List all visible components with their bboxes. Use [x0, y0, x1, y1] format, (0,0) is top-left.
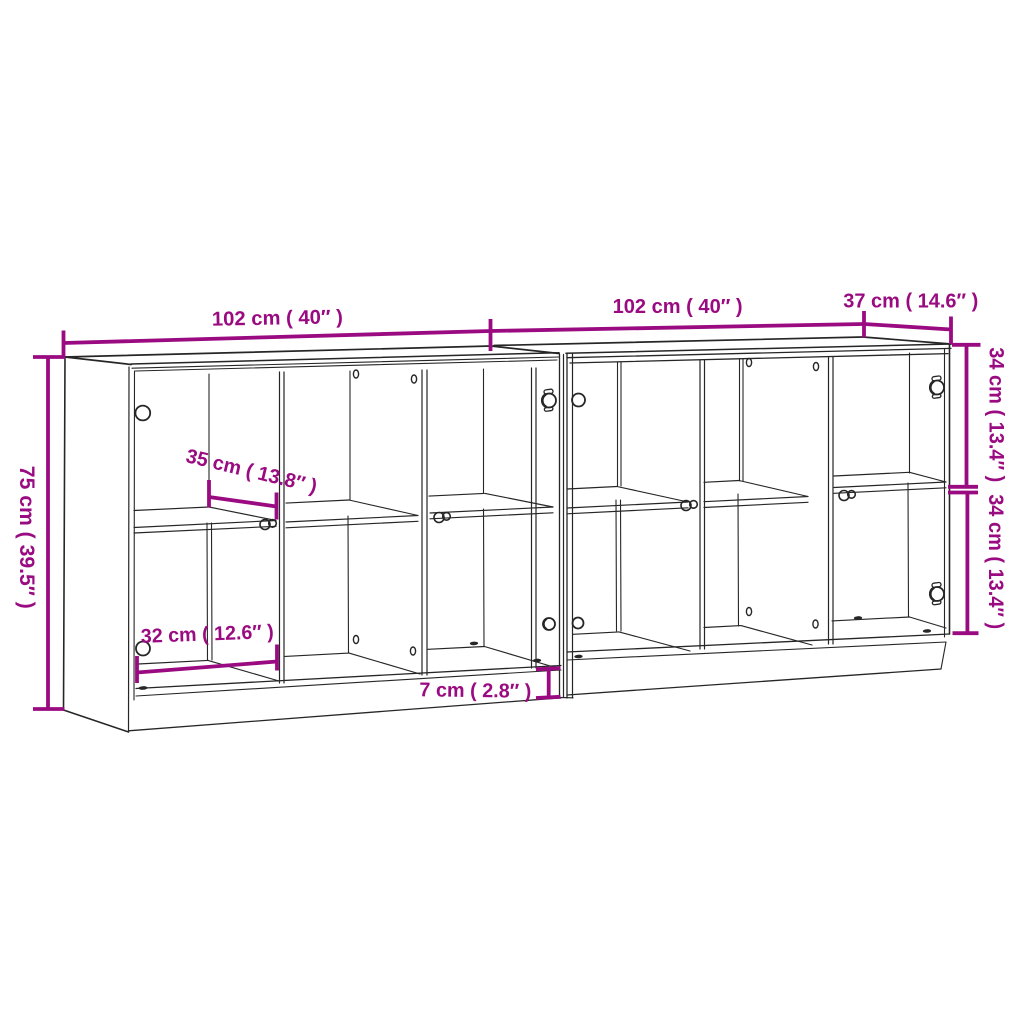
svg-text:34 cm ( 13.4″ ): 34 cm ( 13.4″ ) — [984, 494, 1007, 629]
svg-text:102 cm ( 40″ ): 102 cm ( 40″ ) — [613, 296, 743, 318]
svg-text:32 cm ( 12.6″ ): 32 cm ( 12.6″ ) — [140, 621, 274, 648]
svg-text:75 cm ( 39.5″ ): 75 cm ( 39.5″ ) — [15, 466, 38, 609]
svg-text:34 cm ( 13.4″ ): 34 cm ( 13.4″ ) — [985, 347, 1008, 482]
svg-text:7 cm ( 2.8″ ): 7 cm ( 2.8″ ) — [419, 679, 531, 703]
svg-text:37 cm ( 14.6″ ): 37 cm ( 14.6″ ) — [843, 291, 978, 313]
svg-text:102 cm ( 40″ ): 102 cm ( 40″ ) — [212, 306, 343, 330]
